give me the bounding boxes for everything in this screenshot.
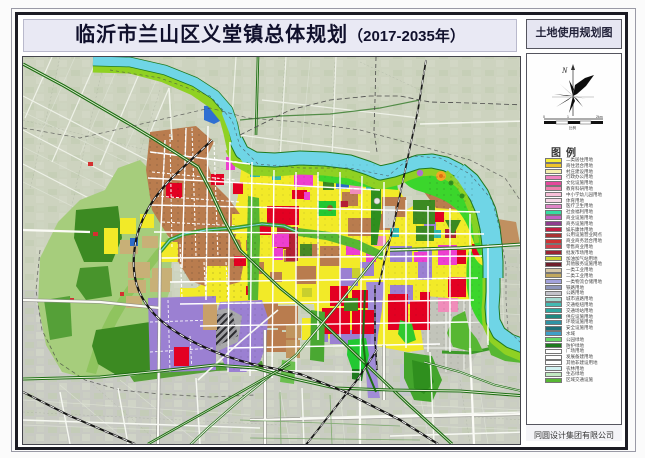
svg-text:1: 1 — [567, 115, 569, 119]
svg-text:比例: 比例 — [569, 125, 577, 130]
svg-text:0: 0 — [543, 115, 545, 119]
svg-text:N: N — [561, 66, 568, 75]
svg-text:2km: 2km — [596, 115, 603, 119]
